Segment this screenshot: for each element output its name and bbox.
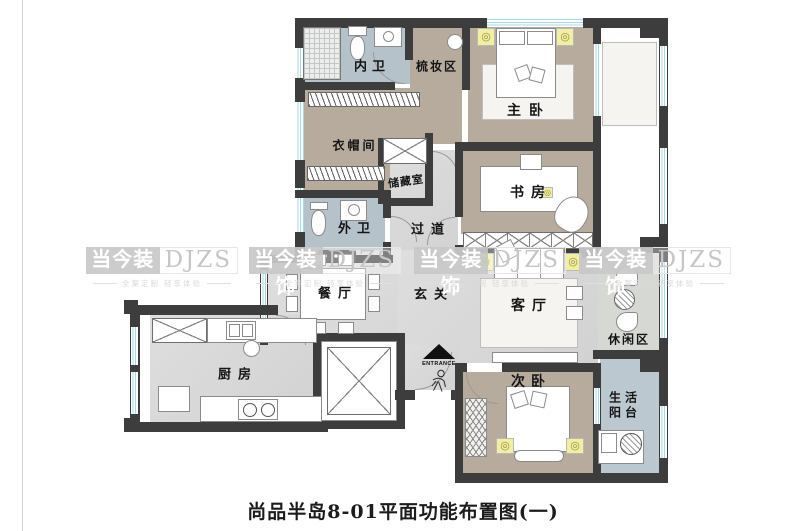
wall-segment <box>405 18 413 60</box>
room-label-master-bath: 内卫 <box>354 56 390 75</box>
laundry-sink <box>601 433 617 453</box>
lamp-glyph: ◎ <box>570 441 580 452</box>
elevator-x <box>327 347 391 415</box>
closet-rail <box>307 166 385 181</box>
bay-window-ledge <box>602 42 657 126</box>
fridge <box>152 318 207 343</box>
wardrobe <box>465 398 487 457</box>
window <box>660 262 667 338</box>
study-bookcase <box>463 232 593 249</box>
wall-segment <box>313 421 405 429</box>
wall-segment <box>462 18 470 90</box>
bedside-lamp-icon: ◎ <box>566 438 584 454</box>
pillow <box>530 391 548 409</box>
toilet <box>311 210 326 236</box>
room-label-living: 客厅 <box>511 295 553 315</box>
room-label-balcony-line2: 阳台 <box>609 404 641 421</box>
dining-chair <box>286 274 298 290</box>
room-label-leisure: 休闲区 <box>608 331 650 348</box>
sofa-lamp-icon: ◎ <box>476 253 494 271</box>
room-label-second-bedroom: 次卧 <box>511 371 551 391</box>
lamp-glyph: ◎ <box>500 441 510 452</box>
watermark-initials: DJZS <box>160 247 238 274</box>
window <box>594 388 600 424</box>
wall-segment <box>460 142 595 151</box>
drawing-title: 尚品半岛8-01平面功能布置图(一) <box>247 497 559 524</box>
room-label-closet: 衣帽间 <box>332 137 377 154</box>
wall-segment <box>295 160 305 188</box>
window <box>594 44 601 116</box>
dash-decoration <box>700 283 724 284</box>
wall-segment <box>593 142 601 257</box>
wall-corner-block <box>124 418 138 432</box>
lamp-glyph: ◎ <box>568 257 578 268</box>
window <box>296 102 304 160</box>
bedside-lamp-icon: ◎ <box>477 28 495 46</box>
lamp-glyph: ◎ <box>480 257 490 268</box>
side-table <box>566 286 583 300</box>
window <box>131 372 138 414</box>
dash-decoration <box>207 283 231 284</box>
window <box>131 327 138 365</box>
kitchen-table <box>158 386 190 412</box>
sink-basin-icon <box>383 31 394 42</box>
leisure-chair <box>616 266 638 286</box>
toilet-tank <box>348 26 367 36</box>
page-border-line <box>22 0 23 531</box>
bedside-lamp-icon: ◎ <box>556 28 574 46</box>
person-icon <box>428 369 450 397</box>
lamp-glyph: ◎ <box>560 32 570 43</box>
wall-segment <box>313 333 405 341</box>
wall-segment <box>593 350 668 359</box>
leisure-chair <box>616 312 638 332</box>
wall-segment <box>455 363 463 475</box>
wall-corner-block <box>640 237 668 253</box>
storage-shaft <box>383 138 427 164</box>
sink-basin-icon <box>348 204 360 216</box>
wall-segment <box>295 190 390 198</box>
pillow <box>499 31 525 45</box>
pot <box>243 340 260 357</box>
watermark: 当今装饰 DJZS 全案定制 轻享体验 <box>86 247 238 289</box>
tv-cabinet <box>492 352 578 363</box>
sink-bowl <box>242 324 253 337</box>
bed-footboard <box>514 450 564 462</box>
wall-segment <box>397 333 405 429</box>
dining-chair <box>338 254 354 266</box>
kitchen-counter <box>207 318 317 343</box>
wall-corner-block <box>124 300 138 314</box>
leisure-table <box>614 289 635 310</box>
entrance-label: ENTRANCE <box>422 361 456 367</box>
window <box>660 406 667 458</box>
dressing-stool <box>447 34 463 50</box>
wall-segment <box>140 305 278 315</box>
dash-decoration <box>93 283 117 284</box>
room-label-kitchen: 厨房 <box>218 364 258 383</box>
closet-rail <box>308 92 420 107</box>
wall-segment <box>593 18 601 44</box>
stove-burner <box>261 403 275 417</box>
room-label-guest-bath: 外卫 <box>338 218 376 237</box>
wall-segment <box>455 142 463 217</box>
watermark-brand: 当今装饰 <box>86 247 160 274</box>
wall-segment <box>295 82 395 90</box>
room-label-master-bedroom: 主卧 <box>507 100 551 120</box>
wall-segment <box>455 473 668 483</box>
wall-segment <box>395 390 415 400</box>
entrance-arrow-icon <box>423 344 455 359</box>
desk-monitor <box>520 154 542 170</box>
room-label-foyer: 玄关 <box>414 284 454 303</box>
room-label-dressing: 梳妆区 <box>416 58 458 75</box>
watermark-tagline: 全案定制 轻享体验 <box>86 278 238 289</box>
lamp-glyph: ◎ <box>481 32 491 43</box>
watermark-tagline-text: 全案定制 轻享体验 <box>122 278 202 289</box>
toilet-tank <box>310 202 328 210</box>
dining-chair <box>310 254 326 266</box>
room-label-dining: 餐厅 <box>318 283 358 302</box>
dining-chair <box>368 274 380 290</box>
dining-chair <box>286 296 298 312</box>
room-label-corridor: 过道 <box>411 219 451 238</box>
side-table <box>566 306 583 320</box>
pillow <box>527 31 553 45</box>
dining-chair <box>368 296 380 312</box>
room-label-study: 书房 <box>510 182 552 202</box>
dining-chair <box>338 322 354 334</box>
washing-machine <box>620 433 642 455</box>
sink-bowl <box>229 324 240 337</box>
wall-segment <box>128 422 328 432</box>
window <box>660 46 667 106</box>
stove-burner <box>243 403 257 417</box>
wall-segment <box>383 190 391 218</box>
sofa-lamp-icon: ◎ <box>564 253 582 271</box>
window <box>487 19 583 27</box>
window <box>660 148 667 224</box>
bedside-lamp-icon: ◎ <box>496 438 514 454</box>
shower-area <box>303 27 341 80</box>
watermark-row: 当今装饰 DJZS <box>86 247 238 274</box>
floor-plan-sheet: ◎ ◎ ◎ ◎ ◎ <box>0 0 805 531</box>
